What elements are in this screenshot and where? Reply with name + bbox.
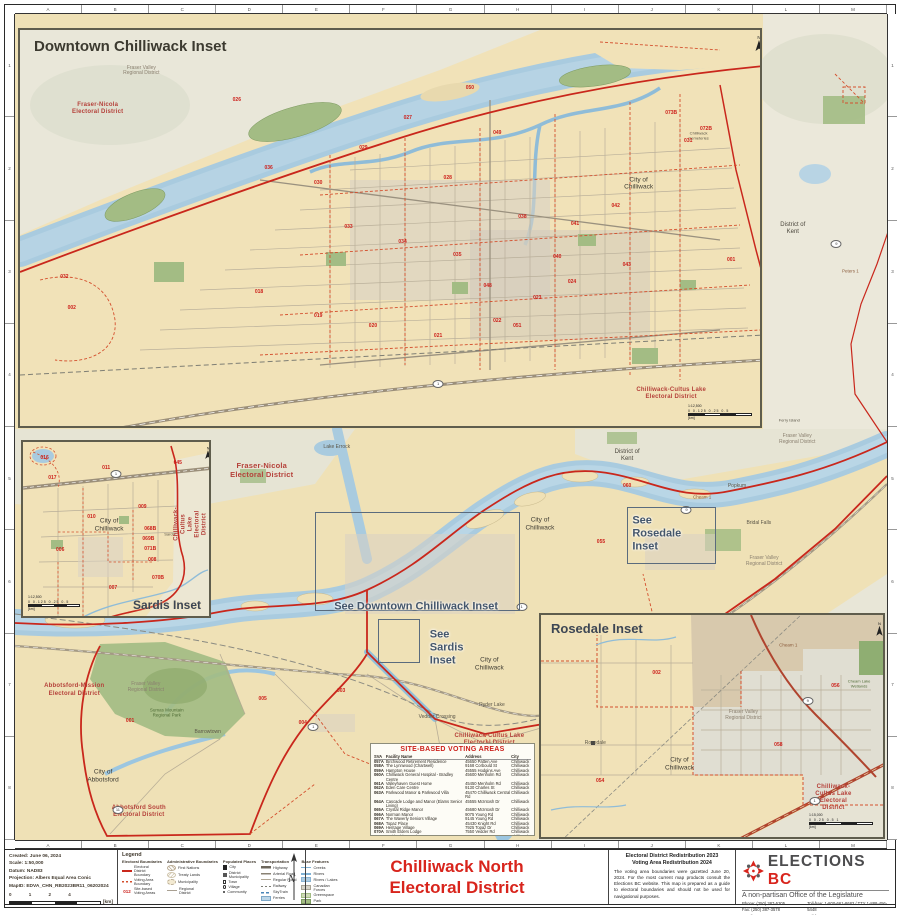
legend-item: Municipality xyxy=(167,879,218,885)
cell-city: Chilliwack xyxy=(511,835,531,836)
legend-item: City xyxy=(223,865,256,870)
highway-shield: 1 xyxy=(111,470,122,478)
map-title: Chilliwack North Electoral District xyxy=(306,850,609,904)
disclaimer-text: The voting area boundaries were gazetted… xyxy=(614,869,730,900)
main-scale-unit: [km] xyxy=(103,899,113,906)
voting-area-number: 072B xyxy=(700,127,712,133)
highway-shield: 1 xyxy=(433,380,444,388)
map-label: Chilliwack-Cultus Lake Electoral Distric… xyxy=(809,784,859,812)
voting-area-number: 002 xyxy=(68,306,76,312)
voting-area-number: 049 xyxy=(493,131,501,137)
voting-area-number: 040 xyxy=(553,255,561,261)
voting-area-number: 028 xyxy=(444,176,452,182)
grid-number: 3 xyxy=(5,221,14,324)
voting-area-number: 058 xyxy=(774,743,782,749)
map-marginalia-bar: Created: June 06, 2024Scale: 1:50,000Dat… xyxy=(4,849,896,905)
map-label: Vedder Crossing xyxy=(419,715,456,721)
voting-area-number: 022 xyxy=(493,319,501,325)
legend-swatch-icon xyxy=(167,872,176,878)
elections-bc-block: ELECTIONS BC A non-partisan Office of th… xyxy=(736,850,895,904)
grid-letter: I xyxy=(552,841,619,848)
voting-area-number: 021 xyxy=(434,334,442,340)
voting-area-number: 050 xyxy=(466,86,474,92)
highway-shield: 9 xyxy=(802,697,813,705)
legend-swatch-icon xyxy=(261,865,271,870)
grid-number: 5 xyxy=(888,427,897,530)
map-label: Sumas Mountain Regional Park xyxy=(150,707,184,718)
site-based-voting-areas-panel: SITE-BASED VOTING AREAS SVA Facility Nam… xyxy=(370,743,535,836)
metadata-line: Projection: Albers Equal Area Conic xyxy=(9,875,113,882)
grid-number: 5 xyxy=(5,427,14,530)
grid-letter: C xyxy=(149,5,216,13)
legend-swatch-icon xyxy=(167,888,177,893)
sardis-inset-title: Sardis Inset xyxy=(133,598,201,612)
map-label: City of Chilliwack xyxy=(665,757,694,772)
legend-item-label: Town xyxy=(228,880,237,884)
grid-letter: E xyxy=(283,5,350,13)
grid-letter: B xyxy=(82,5,149,13)
map-label: Abbotsford South Electoral District xyxy=(112,805,166,819)
sardis-inset-labels: City of ChilliwackSardisChilliwack-Cultu… xyxy=(23,442,209,616)
highway-shield: 11 xyxy=(112,806,123,814)
svg-text:N: N xyxy=(207,446,210,450)
map-label: Cheam 1 xyxy=(779,642,797,647)
grid-number: 3 xyxy=(888,221,897,324)
legend-item: Village xyxy=(223,885,256,889)
legend-swatch-icon xyxy=(223,865,228,870)
cell-facility: Smith Elders Lodge xyxy=(386,835,465,836)
voting-area-number: 001 xyxy=(727,258,735,264)
grid-number: 7 xyxy=(5,634,14,737)
voting-area-number: 020 xyxy=(369,324,377,330)
voting-area-number: 024 xyxy=(568,280,576,286)
highway-shield: 9 xyxy=(831,240,842,248)
map-label: Bridal Falls xyxy=(746,521,771,527)
voting-area-number: 029 xyxy=(359,146,367,152)
elections-bc-wordmark: ELECTIONS BC xyxy=(768,853,889,889)
downtown-inset-extent-box xyxy=(315,512,520,611)
grid-letter: F xyxy=(350,841,417,848)
grid-letter: I xyxy=(552,5,619,13)
legend-item-label: District Municipality xyxy=(229,871,255,879)
map-label: Cheam 1 xyxy=(693,495,711,500)
downtown-inset-labels: Fraser Valley Regional DistrictFraser-Ni… xyxy=(20,30,760,426)
grid-letter: A xyxy=(15,841,82,848)
map-label: Fraser Valley Regional District xyxy=(746,556,782,568)
legend: Legend Electoral Boundaries Electoral Di… xyxy=(118,850,283,904)
map-metadata: Created: June 06, 2024Scale: 1:50,000Dat… xyxy=(5,850,118,904)
voting-area-number: 006 xyxy=(56,548,64,554)
legend-group-title: Administrative Boundaries xyxy=(167,859,218,864)
sardis-scalebar-blocks xyxy=(28,604,80,608)
legend-swatch-icon xyxy=(223,880,227,884)
legend-swatch-icon xyxy=(261,877,271,882)
grid-letter: D xyxy=(216,5,283,13)
grid-letter: F xyxy=(350,5,417,13)
grid-letter: A xyxy=(15,5,82,13)
grid-letter: H xyxy=(485,5,552,13)
logo-tagline: A non-partisan Office of the Legislature xyxy=(742,890,889,899)
map-label: Sardis xyxy=(164,533,175,538)
map-sheet: ABCDEFGHIJKLM ABCDEFGHIJKLM 12345678 123… xyxy=(0,0,903,915)
legend-item: Site-based Voting Areas xyxy=(122,887,162,895)
grid-letter: H xyxy=(485,841,552,848)
grid-letter: G xyxy=(417,841,484,848)
voting-area-number: 036 xyxy=(264,166,272,172)
legend-heading: Legend xyxy=(122,852,279,858)
cell-address: 7910 Topaz Dr xyxy=(465,835,511,836)
voting-area-number: 055 xyxy=(597,541,605,547)
map-label: Cheam Lake Wetlands xyxy=(848,679,871,688)
grid-number: 4 xyxy=(5,324,14,427)
map-label: Chilliwack-Cultus Lake Electoral Distric… xyxy=(636,387,706,401)
map-label: Ryder Lake xyxy=(479,703,505,709)
map-label: Lake Errock xyxy=(323,446,350,452)
voting-area-number: 051 xyxy=(513,324,521,330)
voting-area-number: 016 xyxy=(40,456,48,462)
redistribution-heading-1: Electoral District Redistribution 2023 xyxy=(614,853,730,860)
map-label: Fraser Valley Regional District xyxy=(123,66,159,78)
voting-area-number: 026 xyxy=(233,98,241,104)
svg-text:N: N xyxy=(757,35,760,40)
voting-area-number: 041 xyxy=(571,222,579,228)
contact-line: Toll-free: 1-800-661-8683 / TTY 1-888-45… xyxy=(807,901,889,914)
legend-swatch-icon xyxy=(167,879,176,885)
grid-letter: M xyxy=(820,841,887,848)
legend-item: Voting Area Boundary xyxy=(122,878,162,886)
map-label: Chilliwack Cemeteries xyxy=(688,131,708,140)
legend-swatch-icon xyxy=(261,896,271,901)
map-label: City of Chilliwack xyxy=(525,517,554,532)
legend-swatch-icon xyxy=(122,880,132,885)
voting-area-number: 056 xyxy=(831,684,839,690)
voting-area-number: 069B xyxy=(142,537,154,543)
legend-item: Community xyxy=(223,890,256,894)
legend-swatch-icon xyxy=(122,868,132,873)
map-label: Rosedale xyxy=(585,741,606,747)
grid-letter: J xyxy=(619,841,686,848)
voting-area-number: 007 xyxy=(109,586,117,592)
grid-letter: D xyxy=(216,841,283,848)
metadata-line: Datum: NAD83 xyxy=(9,868,113,875)
legend-item: First Nations xyxy=(167,865,218,871)
map-label: City of Chilliwack xyxy=(624,176,653,191)
grid-letter: L xyxy=(753,5,820,13)
grid-letter: J xyxy=(619,5,686,13)
legend-item: Electoral District Boundary xyxy=(122,865,162,877)
legend-group-admin: Administrative Boundaries First NationsT… xyxy=(167,859,218,905)
voting-area-number: 010 xyxy=(87,515,95,521)
voting-area-number: 033 xyxy=(344,225,352,231)
legend-item: District Municipality xyxy=(223,871,256,879)
voting-area-number: 023 xyxy=(533,296,541,302)
legend-swatch-icon xyxy=(223,885,227,889)
grid-numbers-right: 12345678 xyxy=(887,14,897,840)
voting-area-number: 005 xyxy=(258,697,266,703)
grid-letter: K xyxy=(686,5,753,13)
voting-area-number: 031 xyxy=(684,139,692,145)
voting-area-number: 042 xyxy=(612,204,620,210)
grid-number: 7 xyxy=(888,634,897,737)
voting-area-number: 018 xyxy=(255,290,263,296)
grid-number: 8 xyxy=(5,737,14,840)
highway-shield: 1 xyxy=(809,797,820,805)
grid-letter: B xyxy=(82,841,149,848)
grid-numbers-left: 12345678 xyxy=(5,14,15,840)
voting-area-number: 048 xyxy=(484,284,492,290)
legend-item-label: Treaty Lands xyxy=(178,873,200,877)
voting-area-number: 002 xyxy=(652,671,660,677)
map-label: City of Abbotsford xyxy=(87,769,118,784)
legend-item-label: City xyxy=(229,865,236,869)
map-label: Fraser Valley Regional District xyxy=(779,434,815,446)
metadata-line: MapID: EDVA_CHN_RB2023BR11_06202024 xyxy=(9,883,113,890)
legend-swatch-icon xyxy=(223,873,227,877)
voting-areas-table: SVA Facility Name Address City 057A Birc… xyxy=(374,755,531,837)
highway-shield: 1 xyxy=(308,723,319,731)
voting-area-number: 060 xyxy=(623,484,631,490)
map-label: District of Kent xyxy=(780,222,805,236)
map-label: Popkum xyxy=(728,484,746,490)
legend-item-label: Voting Area Boundary xyxy=(134,878,160,886)
voting-area-number: 004 xyxy=(299,721,307,727)
downtown-inset-title: Downtown Chilliwack Inset xyxy=(34,38,227,55)
legend-swatch-icon xyxy=(261,871,271,876)
redistribution-info: Electoral District Redistribution 2023 V… xyxy=(609,850,736,904)
map-label: City of Chilliwack xyxy=(475,656,504,671)
map-title-line2: Electoral District xyxy=(389,877,524,898)
legend-item: Regional District xyxy=(167,887,218,895)
legend-swatch-icon xyxy=(122,889,132,894)
map-label: Barrowtown xyxy=(195,730,221,736)
grid-letter: G xyxy=(417,5,484,13)
legend-item-label: Electoral District Boundary xyxy=(134,865,160,877)
legend-item-label: Community xyxy=(227,890,246,894)
map-label: Peters 1 xyxy=(842,268,859,273)
main-scalebar xyxy=(9,901,101,905)
voting-area-number: 054 xyxy=(596,779,604,785)
grid-letter: E xyxy=(283,841,350,848)
grid-number: 2 xyxy=(5,117,14,220)
legend-item: Town xyxy=(223,880,256,884)
north-arrow-icon: N xyxy=(284,852,304,902)
map-label: City of Chilliwack xyxy=(95,518,124,533)
grid-letter: L xyxy=(753,841,820,848)
legend-swatch-icon xyxy=(261,884,271,889)
voting-area-number: 071B xyxy=(144,547,156,553)
downtown-chilliwack-inset: Downtown Chilliwack Inset Fraser Valley … xyxy=(18,28,762,428)
voting-area-number: 038 xyxy=(518,215,526,221)
map-canvas: Fraser-Nicola Electoral DistrictLake Err… xyxy=(15,14,887,840)
legend-item: Treaty Lands xyxy=(167,872,218,878)
rosedale-inset-title: Rosedale Inset xyxy=(551,621,643,636)
sardis-scale-ratio: 1:12,500 xyxy=(28,595,80,599)
legend-item-label: Site-based Voting Areas xyxy=(134,887,160,895)
downtown-scale-ratio: 1:12,500 xyxy=(688,404,752,408)
voting-area-number: 009 xyxy=(138,506,146,512)
metadata-line: Created: June 06, 2024 xyxy=(9,853,113,860)
map-label: Fraser-Nicola Electoral District xyxy=(72,102,123,116)
legend-swatch-icon xyxy=(223,891,226,894)
legend-group-electoral: Electoral Boundaries Electoral District … xyxy=(122,859,162,905)
voting-area-number: 017 xyxy=(48,476,56,482)
voting-area-number: 008 xyxy=(148,558,156,564)
voting-area-number: 034 xyxy=(398,240,406,246)
grid-number: 1 xyxy=(5,14,14,117)
voting-area-number: 011 xyxy=(102,466,110,472)
table-row: 070B Smith Elders Lodge 7910 Topaz Dr Ch… xyxy=(374,835,531,836)
voting-area-number: 073B xyxy=(665,111,677,117)
bar-north-arrow: N xyxy=(283,850,306,904)
main-scale-ticks: 0 1 2 4 xyxy=(9,892,113,899)
rosedale-inset: Rosedale Inset City of ChilliwackFraser … xyxy=(539,613,885,839)
map-label: Fraser Valley Regional District xyxy=(128,682,164,694)
grid-number: 2 xyxy=(888,117,897,220)
grid-letter: M xyxy=(820,5,887,13)
legend-swatch-icon xyxy=(261,890,271,895)
map-title-line1: Chilliwack North xyxy=(390,856,523,877)
voting-area-number: 027 xyxy=(404,116,412,122)
voting-area-number: 032 xyxy=(60,275,68,281)
legend-item-label: Village xyxy=(228,885,239,889)
grid-number: 1 xyxy=(888,14,897,117)
grid-number: 4 xyxy=(888,324,897,427)
rosedale-inset-extent-box xyxy=(627,507,716,564)
map-label: District of Kent xyxy=(615,449,640,463)
downtown-scalebar-blocks xyxy=(688,413,752,417)
rosedale-scalebar-blocks xyxy=(809,822,873,826)
voting-area-number: 045 xyxy=(174,461,182,467)
map-label: Ferry Island xyxy=(779,419,800,424)
voting-area-number: 030 xyxy=(314,181,322,187)
voting-area-number: 068B xyxy=(144,527,156,533)
grid-number: 6 xyxy=(5,530,14,633)
legend-item-label: Regional District xyxy=(179,887,205,895)
map-label: Fraser-Nicola Electoral District xyxy=(230,462,293,480)
map-label: Fraser Valley Regional District xyxy=(725,710,761,722)
downtown-scalebar: 1:12,500 0 0.125 0.25 0.5 [km] xyxy=(688,404,752,420)
cell-sva: 070B xyxy=(374,835,386,836)
rosedale-scale-unit: [km] xyxy=(809,825,816,829)
legend-group-title: Populated Places xyxy=(223,859,256,864)
grid-number: 6 xyxy=(888,530,897,633)
grid-letters-bottom: ABCDEFGHIJKLM xyxy=(15,840,887,849)
voting-area-number: 001 xyxy=(126,719,134,725)
sardis-scale-unit: [km] xyxy=(28,607,35,611)
voting-area-number: 035 xyxy=(453,253,461,259)
voting-areas-table-title: SITE-BASED VOTING AREAS xyxy=(374,746,531,753)
grid-letters-top: ABCDEFGHIJKLM xyxy=(15,5,887,14)
sardis-inset-extent-box xyxy=(378,619,421,664)
grid-number: 8 xyxy=(888,737,897,840)
voting-area-number: 019 xyxy=(314,314,322,320)
sardis-scalebar: 1:12,500 0 0.125 0.25 0.5 [km] xyxy=(28,595,80,611)
map-label: Abbotsford-Mission Electoral District xyxy=(44,683,104,697)
legend-item-label: First Nations xyxy=(178,866,199,870)
elections-bc-logo-icon xyxy=(742,859,765,883)
contact-left: Phone: (250) 387-5305Fax: (250) 387-3578… xyxy=(742,901,802,915)
map-label: Chilliwack-Cultus Lake Electoral Distric… xyxy=(174,507,209,541)
downtown-scale-unit: [km] xyxy=(688,416,695,420)
voting-area-number: 003 xyxy=(337,689,345,695)
legend-group-places: Populated Places CityDistrict Municipali… xyxy=(223,859,256,905)
rosedale-inset-labels: City of ChilliwackFraser Valley Regional… xyxy=(541,615,883,837)
redistribution-heading-2: Voting Area Redistribution 2024 xyxy=(614,860,730,867)
voting-area-number: 043 xyxy=(623,263,631,269)
grid-letter: C xyxy=(149,841,216,848)
svg-text:N: N xyxy=(287,873,296,885)
svg-text:N: N xyxy=(878,621,881,626)
metadata-line: Scale: 1:50,000 xyxy=(9,860,113,867)
grid-letter: K xyxy=(686,841,753,848)
sardis-inset: City of ChilliwackSardisChilliwack-Cultu… xyxy=(21,440,211,618)
rosedale-scalebar: 1:15,000 0 0.25 0.5 1 [km] xyxy=(809,813,873,829)
voting-area-number: 070B xyxy=(152,576,164,582)
legend-swatch-icon xyxy=(167,865,176,871)
legend-group-title: Electoral Boundaries xyxy=(122,859,162,864)
contact-right: Toll-free: 1-800-661-8683 / TTY 1-888-45… xyxy=(807,901,889,915)
rosedale-scale-ratio: 1:15,000 xyxy=(809,813,873,817)
legend-item-label: Municipality xyxy=(178,880,198,884)
